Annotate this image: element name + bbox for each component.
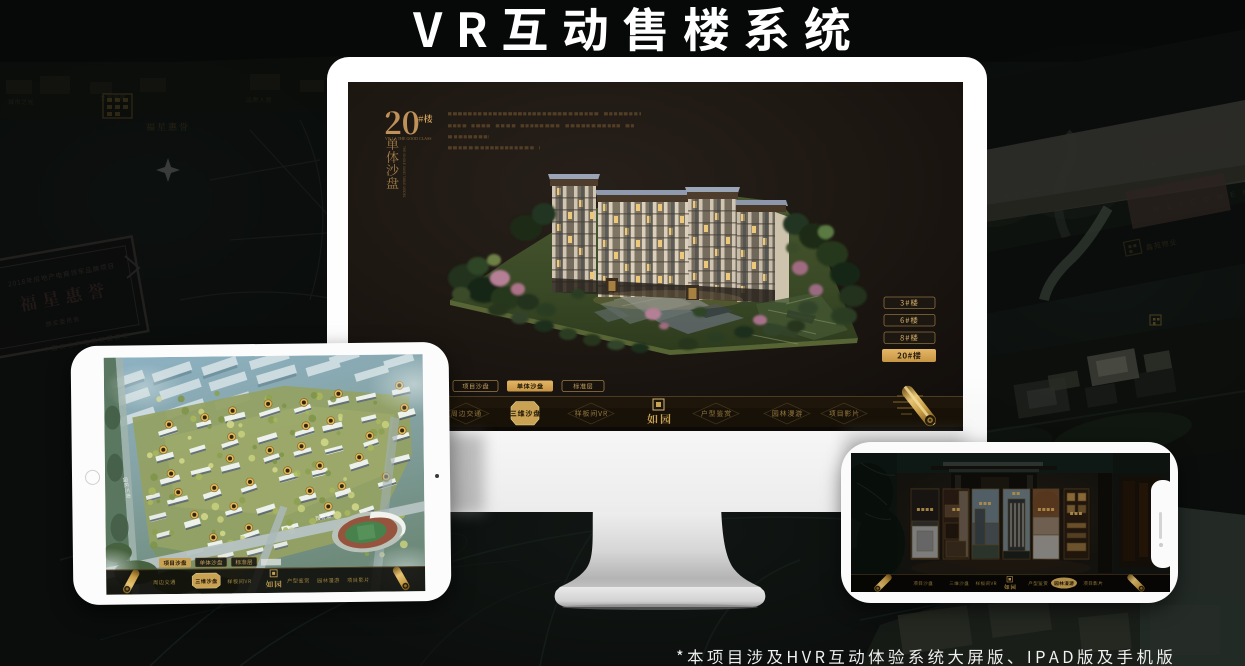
svg-text:THE SINGLE SAND TABLE MODEL: THE SINGLE SAND TABLE MODEL (402, 146, 406, 198)
svg-text:VILLA THE GOOD CLASS: VILLA THE GOOD CLASS (385, 136, 431, 141)
